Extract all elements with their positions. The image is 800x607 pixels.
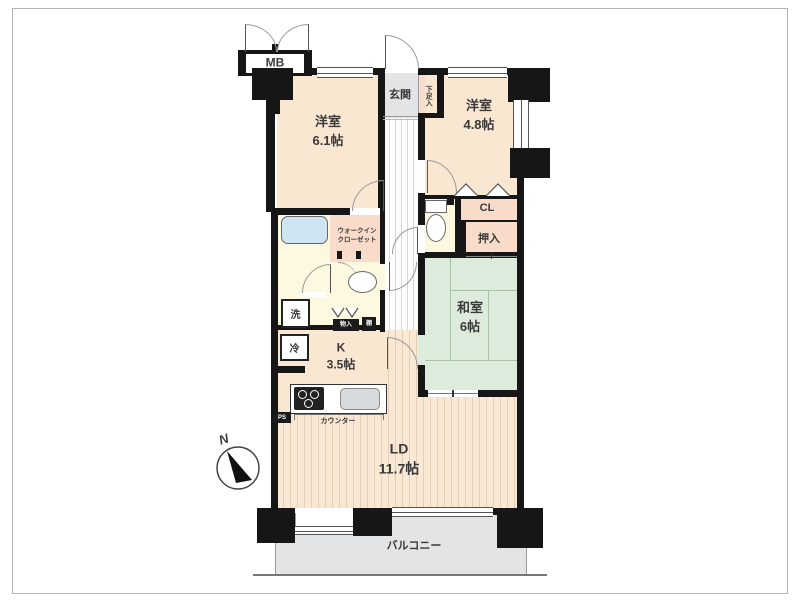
shelf-box: 棚: [362, 317, 376, 331]
bay-recess: [295, 513, 355, 527]
wall-corner-block: [257, 508, 295, 543]
door-opening: [418, 225, 425, 253]
wall-hinge: [356, 251, 361, 259]
wic-line2: クローゼット: [338, 236, 377, 245]
living-dining-label: LD 11.7帖: [379, 439, 419, 480]
kitchen-label: K 3.5帖: [327, 340, 356, 375]
closet-bifold-icon: [453, 183, 513, 197]
washbasin: [348, 271, 377, 293]
entrance-step: [383, 119, 418, 120]
fusuma-tick: [452, 390, 454, 397]
entrance-label: 玄関: [389, 88, 411, 104]
bedroom1-size: 6.1帖: [312, 132, 343, 151]
fridge-space: 冷: [280, 334, 309, 361]
ld-name: LD: [379, 439, 419, 459]
wall: [266, 112, 275, 212]
storage-small-label: 物入: [340, 322, 352, 328]
kitchen-name: K: [327, 340, 356, 357]
window: [448, 67, 507, 78]
counter-label: カウンター: [321, 417, 356, 427]
wall: [380, 208, 385, 264]
wall: [437, 68, 444, 118]
storage-small-box: 物入: [333, 319, 359, 331]
washitsu-label: 和室 6帖: [457, 299, 483, 337]
tatami-line: [425, 360, 517, 361]
walkin-closet-label: ウォークイン クローゼット: [338, 227, 377, 246]
wall-corner-block: [508, 68, 550, 102]
bedroom2-label: 洋室 4.8帖: [463, 97, 494, 135]
window: [317, 67, 373, 78]
wall: [461, 220, 517, 222]
wall: [418, 253, 425, 335]
wall-right: [517, 148, 524, 508]
washitsu-size: 6帖: [457, 318, 483, 337]
wall-corner-block: [252, 68, 293, 100]
fridge-label: 冷: [290, 340, 300, 355]
entrance-step: [383, 116, 418, 117]
window-ld: [392, 507, 493, 517]
window: [513, 100, 529, 148]
burner-icon: [298, 390, 307, 399]
wall-hinge: [447, 198, 454, 205]
bathtub: [281, 216, 328, 244]
wall: [418, 252, 517, 258]
burner-icon: [304, 399, 313, 408]
ground-line: [253, 574, 547, 576]
wall: [271, 208, 350, 215]
floorplan: 洗 冷 物入 棚 PS MB 玄関 下足入 洋室 6.1帖 洋室 4.8帖 CL…: [0, 0, 800, 607]
pipe-space-label: PS: [278, 415, 286, 421]
bedroom1-label: 洋室 6.1帖: [312, 113, 343, 151]
kitchen-size: 3.5帖: [327, 357, 356, 374]
oshiire-label: 押入: [478, 232, 500, 248]
wall: [271, 366, 305, 373]
pipe-space-box: PS: [273, 412, 291, 423]
kitchen-sink: [340, 388, 380, 410]
ld-size: 11.7帖: [379, 459, 419, 479]
laundry-space: 洗: [281, 299, 310, 328]
door-opening: [418, 160, 425, 193]
wall-hall-right: [418, 113, 425, 160]
meter-box-label: MB: [266, 54, 285, 71]
bedroom1-name: 洋室: [312, 113, 343, 132]
window-bay: [295, 526, 353, 535]
wall: [418, 390, 428, 397]
toilet-bowl: [426, 214, 446, 242]
wall-hinge: [337, 251, 342, 259]
wall: [478, 390, 517, 397]
bedroom2-size: 4.8帖: [463, 116, 494, 135]
wall-corner-block: [497, 508, 543, 548]
compass-icon: [205, 430, 275, 495]
wall: [353, 508, 392, 536]
stove: [294, 387, 324, 410]
wic-line1: ウォークイン: [338, 227, 377, 236]
tatami-line: [450, 258, 451, 360]
oshiire-fusuma-tick: [491, 253, 492, 259]
balcony-label: バルコニー: [387, 539, 442, 555]
burner-icon: [310, 390, 319, 399]
toilet-tank: [425, 200, 447, 213]
bedroom2-name: 洋室: [463, 97, 494, 116]
washitsu-name: 和室: [457, 299, 483, 318]
laundry-label: 洗: [291, 306, 301, 321]
wall-pillar: [510, 148, 550, 178]
tatami-line: [488, 290, 489, 360]
shoe-cabinet-label: 下足入: [423, 86, 433, 107]
hallway-floor: [383, 118, 418, 330]
storage-bifold-icon: [331, 307, 361, 319]
shelf-label: 棚: [366, 321, 372, 327]
closet-cl-label: CL: [480, 201, 495, 217]
tatami-line: [450, 290, 517, 291]
